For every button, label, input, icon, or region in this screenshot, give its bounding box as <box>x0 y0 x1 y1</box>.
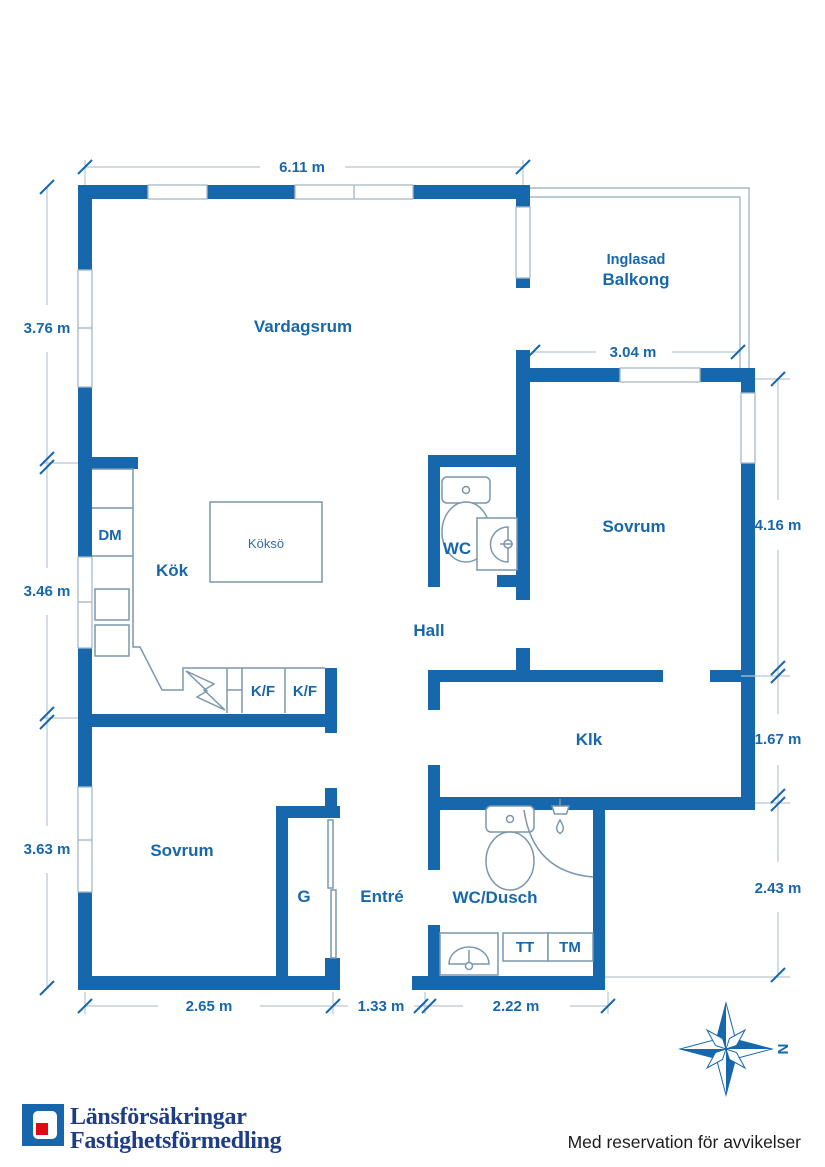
room-label-kok: Kök <box>156 561 189 580</box>
dim-bottom-right: 2.22 m <box>493 998 540 1015</box>
room-label-klk: Klk <box>576 730 603 749</box>
exterior-walls <box>78 185 755 990</box>
dim-right-bottom: 2.43 m <box>755 880 802 897</box>
dim-right-mid: 1.67 m <box>755 731 802 748</box>
appliance-label-tt: TT <box>516 939 534 956</box>
appliance-label-kf1: K/F <box>251 683 275 700</box>
washbasin-icon <box>477 518 517 570</box>
dim-left-mid: 3.46 m <box>24 583 71 600</box>
dim-balcony: 3.04 m <box>610 344 657 361</box>
dim-left-top: 3.76 m <box>24 320 71 337</box>
brand-name-line1: Länsförsäkringar <box>70 1104 247 1130</box>
room-label-hall: Hall <box>413 621 444 640</box>
room-labels: Vardagsrum Inglasad Balkong Kök Köksö DM… <box>98 252 669 956</box>
brand-name-line2: Fastighetsförmedling <box>70 1128 282 1154</box>
stove-icon <box>95 589 129 620</box>
closet-doors <box>328 820 336 958</box>
compass-north-label: N <box>774 1044 791 1055</box>
toilet-icon-2 <box>486 806 534 890</box>
room-label-wc: WC <box>443 539 471 558</box>
dim-top: 6.11 m <box>279 159 325 176</box>
room-label-g: G <box>297 887 310 906</box>
floorplan-page: 6.11 m 3.04 m 3.76 m 3.46 m 3.63 m 4.16 … <box>0 0 825 1167</box>
washbasin-icon-2 <box>440 933 498 975</box>
dim-bottom-left: 2.65 m <box>186 998 233 1015</box>
room-label-wc-dusch: WC/Dusch <box>453 888 538 907</box>
windows <box>78 185 755 892</box>
logo-red-square-icon <box>36 1123 48 1135</box>
room-label-vardagsrum: Vardagsrum <box>254 317 352 336</box>
floorplan-drawing: 6.11 m 3.04 m 3.76 m 3.46 m 3.63 m 4.16 … <box>0 0 825 1167</box>
room-label-sovrum-left: Sovrum <box>150 841 213 860</box>
dim-right-top: 4.16 m <box>755 517 802 534</box>
dim-left-bottom: 3.63 m <box>24 841 71 858</box>
brand-logo <box>22 1104 64 1146</box>
range-icon <box>186 671 225 710</box>
appliance-label-dm: DM <box>98 527 121 544</box>
room-label-inglasad: Inglasad <box>607 252 666 268</box>
dim-bottom-mid: 1.33 m <box>358 998 405 1015</box>
room-label-balkong: Balkong <box>602 270 669 289</box>
room-label-sovrum-right: Sovrum <box>602 517 665 536</box>
dimension-labels: 6.11 m 3.04 m 3.76 m 3.46 m 3.63 m 4.16 … <box>24 159 802 1015</box>
room-label-entre: Entré <box>360 887 403 906</box>
dimension-lines <box>40 160 790 1014</box>
island-label-kokso: Köksö <box>248 536 284 551</box>
compass-rose-icon: N <box>680 1003 791 1095</box>
disclaimer-text: Med reservation för avvikelser <box>568 1132 802 1152</box>
appliance-label-tm: TM <box>559 939 581 956</box>
appliance-label-kf2: K/F <box>293 683 317 700</box>
